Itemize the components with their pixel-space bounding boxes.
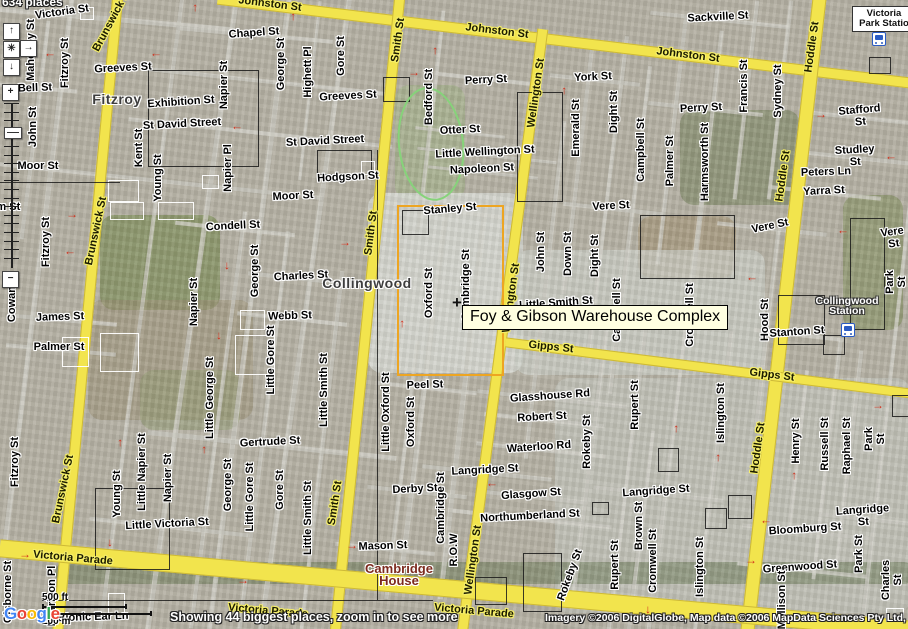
one-way-arrow-icon: → (197, 444, 207, 456)
street-label: Perry St (680, 101, 723, 115)
one-way-arrow-icon: → (711, 452, 721, 464)
zoom-slider-tick (4, 103, 19, 104)
street-label: Langridge St (836, 502, 891, 530)
street-label: Moor St (272, 189, 314, 203)
street-label: Kent St (133, 129, 145, 168)
street-label: R.O.W (448, 534, 460, 567)
one-way-arrow-icon: → (44, 52, 56, 62)
zoom-slider-tick (4, 112, 19, 113)
pan-right-button[interactable]: → (20, 40, 37, 57)
status-text: Showing 44 biggest places, zoom in to se… (170, 610, 458, 624)
street-label: Moor St (18, 160, 59, 172)
street-label: George St (249, 245, 261, 298)
street-label: Fitzroy St (40, 217, 52, 267)
one-way-arrow-icon: → (395, 318, 405, 330)
street-label: Little Oxford St (380, 372, 392, 451)
place-tooltip: Foy & Gibson Warehouse Complex (462, 305, 728, 330)
street-label: Vere St (880, 224, 906, 251)
street-label: Little Smith St (302, 481, 314, 555)
street-label: Gore St (274, 470, 286, 510)
place-outline-rect (240, 310, 265, 330)
street-label: Park St (884, 270, 908, 294)
zoom-out-button[interactable]: − (2, 271, 19, 288)
street-label: Greeves St (319, 89, 377, 104)
street-label: Brown St (633, 502, 645, 550)
street-label: Little Gore St (265, 325, 277, 394)
one-way-arrow-icon: → (224, 260, 234, 272)
one-way-arrow-icon: → (486, 482, 498, 492)
one-way-arrow-icon: → (787, 470, 797, 482)
zoom-slider-tick (4, 241, 19, 242)
street-label: Webb St (268, 309, 312, 323)
google-logo-letter: G (4, 604, 17, 623)
one-way-arrow-icon: → (231, 125, 243, 135)
zoom-in-button[interactable]: + (2, 84, 19, 101)
street-label: Young St (111, 470, 123, 517)
zoom-slider-tick (4, 146, 19, 147)
place-outline-rect (658, 448, 679, 472)
one-way-arrow-icon: → (557, 85, 567, 97)
street-label: Henry St (790, 418, 802, 463)
street-label: Napier St (162, 454, 174, 502)
place-outline-rect (202, 175, 219, 189)
street-label: John St (535, 232, 547, 272)
one-way-arrow-icon: → (885, 155, 897, 165)
map-canvas[interactable]: Foy & Gibson Warehouse Complex ↑ ✳ → ↓ +… (0, 0, 908, 629)
street-label: Yarra St (803, 184, 845, 198)
zoom-slider[interactable] (2, 103, 22, 268)
places-count-text: 634 places (2, 0, 63, 9)
one-way-arrow-icon: → (66, 209, 78, 219)
street-label: Oxford St (423, 268, 435, 318)
street-label: Fitzroy St (9, 437, 21, 487)
train-station-icon (872, 32, 886, 46)
one-way-arrow-icon: → (669, 423, 679, 435)
zoom-slider-tick (4, 223, 19, 224)
street-label: Oxford St (405, 397, 417, 447)
street-label: Emerald St (570, 99, 582, 156)
zoom-slider-tick (4, 163, 19, 164)
one-way-arrow-icon: → (64, 250, 76, 260)
street-label: Vere St (751, 216, 790, 235)
street-label: Charles St (880, 560, 904, 600)
street-label: Little Gore St (244, 462, 256, 531)
place-outline-rect (592, 502, 609, 515)
place-outline-rect (523, 553, 562, 612)
one-way-arrow-icon: → (216, 330, 226, 342)
suburb-label: Collingwood (322, 275, 411, 291)
street-label: Stafford St (835, 102, 885, 130)
street-label: Little Napier St (136, 433, 148, 511)
one-way-arrow-icon: → (837, 229, 849, 239)
pan-up-button[interactable]: ↑ (3, 23, 20, 40)
street-label: Islington St (694, 537, 706, 597)
station-name-box: Victoria Park Statio (852, 6, 908, 32)
street-label: Islington St (715, 383, 727, 443)
one-way-arrow-icon: → (815, 109, 827, 119)
one-way-arrow-icon: → (428, 45, 438, 57)
street-label: Palmer St (664, 136, 676, 187)
street-label: York St (574, 70, 612, 84)
one-way-arrow-icon: → (746, 276, 758, 286)
street-label: Napier St (218, 61, 230, 109)
place-outline-rect (475, 577, 507, 605)
street-label: Napier Pl (222, 144, 234, 192)
zoom-slider-tick (4, 232, 19, 233)
one-way-arrow-icon: → (107, 537, 117, 549)
one-way-arrow-icon: → (408, 67, 420, 77)
zoom-slider-tick (4, 120, 19, 121)
street-label: Bell St (18, 81, 53, 94)
landmark-label: Cambridge House (365, 563, 433, 587)
street-label: Mason St (358, 539, 407, 553)
street-label: Park St (853, 535, 865, 573)
main-road-label: Johnston St (656, 45, 721, 65)
place-outline-rect (869, 57, 891, 74)
street-label: Francis St (738, 59, 750, 112)
main-road-label: Johnston St (238, 0, 303, 14)
pan-down-button[interactable]: ↓ (3, 59, 20, 76)
place-outline-rect (108, 180, 139, 202)
one-way-arrow-icon: → (346, 540, 358, 550)
zoom-slider-handle[interactable] (4, 127, 22, 139)
place-outline-rect (158, 202, 194, 220)
selected-place-marker: + (452, 298, 462, 308)
google-logo-letter: o (17, 604, 27, 623)
zoom-slider-tick (4, 206, 19, 207)
place-outline-rect (892, 395, 908, 417)
street-label: James St (36, 310, 85, 324)
street-label: Russell St (819, 417, 831, 470)
street-label: Young St (152, 154, 164, 201)
one-way-arrow-icon: → (237, 575, 249, 585)
street-label: Gore St (335, 36, 347, 76)
street-label: Cambridge St (435, 472, 447, 544)
pan-center-button[interactable]: ✳ (3, 41, 20, 58)
street-label: George St (222, 459, 234, 512)
street-label: Napier St (188, 278, 200, 326)
suburb-label: Fitzroy (92, 91, 141, 107)
street-label: Peel St (406, 378, 443, 391)
place-outline-rect (100, 333, 139, 372)
street-label: Sydney St (772, 64, 784, 117)
place-outline-rect (110, 202, 144, 220)
place-outline-rect (728, 495, 752, 519)
one-way-arrow-icon: → (19, 549, 31, 559)
one-way-arrow-icon: → (745, 555, 757, 565)
attribution-text[interactable]: Imagery ©2006 DigitalGlobe, Map data ©20… (545, 612, 908, 624)
street-label: Bedford St (423, 69, 435, 125)
scale-feet-label: 500 ft (42, 592, 152, 603)
zoom-slider-tick (4, 249, 19, 250)
zoom-slider-tick (4, 172, 19, 173)
one-way-arrow-icon: → (150, 52, 162, 62)
zoom-slider-tick (4, 180, 19, 181)
street-label: Rupert St (629, 380, 641, 430)
street-label: Dight St (608, 91, 620, 133)
street-label: Park St (863, 423, 887, 456)
one-way-arrow-icon: → (339, 237, 351, 247)
street-label: Down St (562, 232, 574, 276)
zoom-slider-tick (4, 215, 19, 216)
street-label: Raphael St (841, 418, 853, 475)
street-label: Fitzroy St (59, 38, 71, 88)
street-label: Rokeby St (581, 415, 593, 469)
one-way-arrow-icon: → (113, 437, 123, 449)
place-outline-rect (705, 508, 727, 529)
street-label: Campbell St (635, 118, 647, 182)
zoom-slider-tick (4, 155, 19, 156)
street-label: Rupert St (609, 540, 621, 590)
station-name-label: Collingwood Station (816, 296, 879, 316)
street-label: Harmsworth St (699, 123, 711, 201)
place-outline-rect (383, 77, 410, 102)
train-station-icon (841, 323, 855, 337)
street-label: Perry St (465, 73, 508, 87)
street-label: Little Smith St (318, 353, 330, 427)
one-way-arrow-icon: → (872, 400, 884, 410)
place-outline-rect (640, 215, 735, 279)
google-logo: Google (4, 604, 60, 624)
google-logo-letter: e (51, 604, 60, 623)
zoom-slider-tick (4, 258, 19, 259)
google-logo-letter: o (27, 604, 37, 623)
street-label: George St (275, 38, 287, 91)
one-way-arrow-icon: → (188, 2, 198, 14)
street-label: Peters Ln (801, 165, 852, 179)
street-label: Greeves St (94, 61, 152, 76)
zoom-slider-tick (4, 189, 19, 190)
street-label: Otter St (440, 123, 481, 137)
street-label: Vere St (592, 199, 630, 213)
zoom-slider-tick (4, 198, 19, 199)
street-label: Little George St (204, 357, 216, 439)
street-label: Highett Pl (302, 46, 314, 97)
street-label: Hodgson St (317, 169, 379, 184)
street-label: Palmer St (34, 341, 85, 353)
street-label: Dight St (589, 235, 601, 277)
street-label: Hood St (759, 299, 771, 341)
google-logo-letter: g (37, 604, 47, 623)
street-label: John St (27, 107, 39, 147)
selected-place-rect[interactable] (397, 205, 504, 376)
place-outline-rect (823, 335, 845, 355)
street-label: Derby St (392, 482, 438, 496)
street-label: Cromwell St (647, 529, 659, 593)
